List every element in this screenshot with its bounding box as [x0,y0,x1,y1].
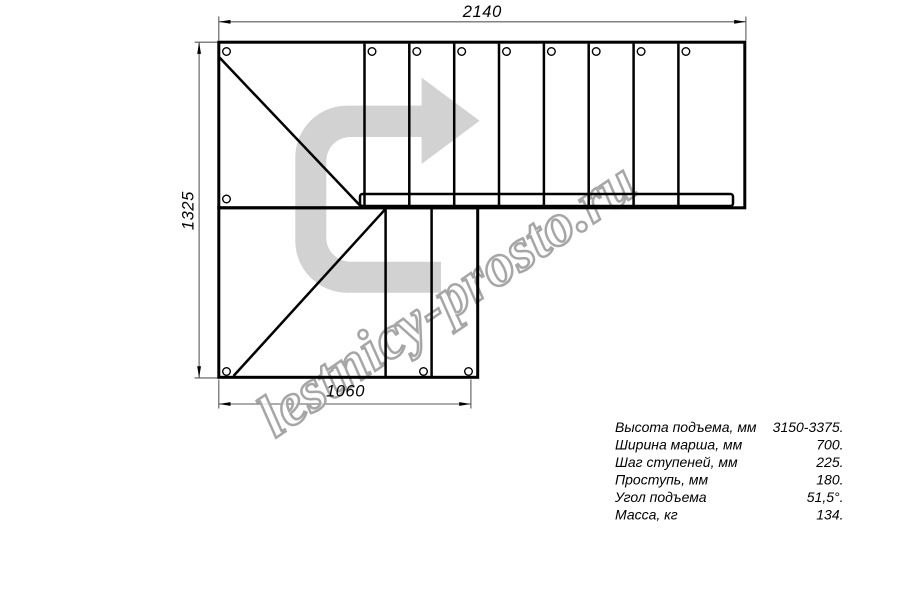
svg-text:700.: 700. [816,437,843,453]
svg-text:134.: 134. [816,507,843,523]
svg-text:Ширина марша, мм: Ширина марша, мм [615,437,743,453]
svg-text:2140: 2140 [462,3,502,21]
svg-text:Угол подъема: Угол подъема [614,489,707,505]
svg-text:225.: 225. [815,454,843,470]
svg-text:180.: 180. [816,472,843,488]
svg-text:Высота подъема, мм: Высота подъема, мм [615,419,757,435]
svg-text:Шаг ступеней, мм: Шаг ступеней, мм [615,454,738,470]
svg-text:1325: 1325 [179,191,197,230]
svg-text:3150-3375.: 3150-3375. [773,419,844,435]
svg-text:1060: 1060 [326,383,365,401]
svg-text:51,5°.: 51,5°. [807,489,844,505]
svg-text:Масса, кг: Масса, кг [615,507,678,523]
svg-text:Проступь, мм: Проступь, мм [615,472,709,488]
